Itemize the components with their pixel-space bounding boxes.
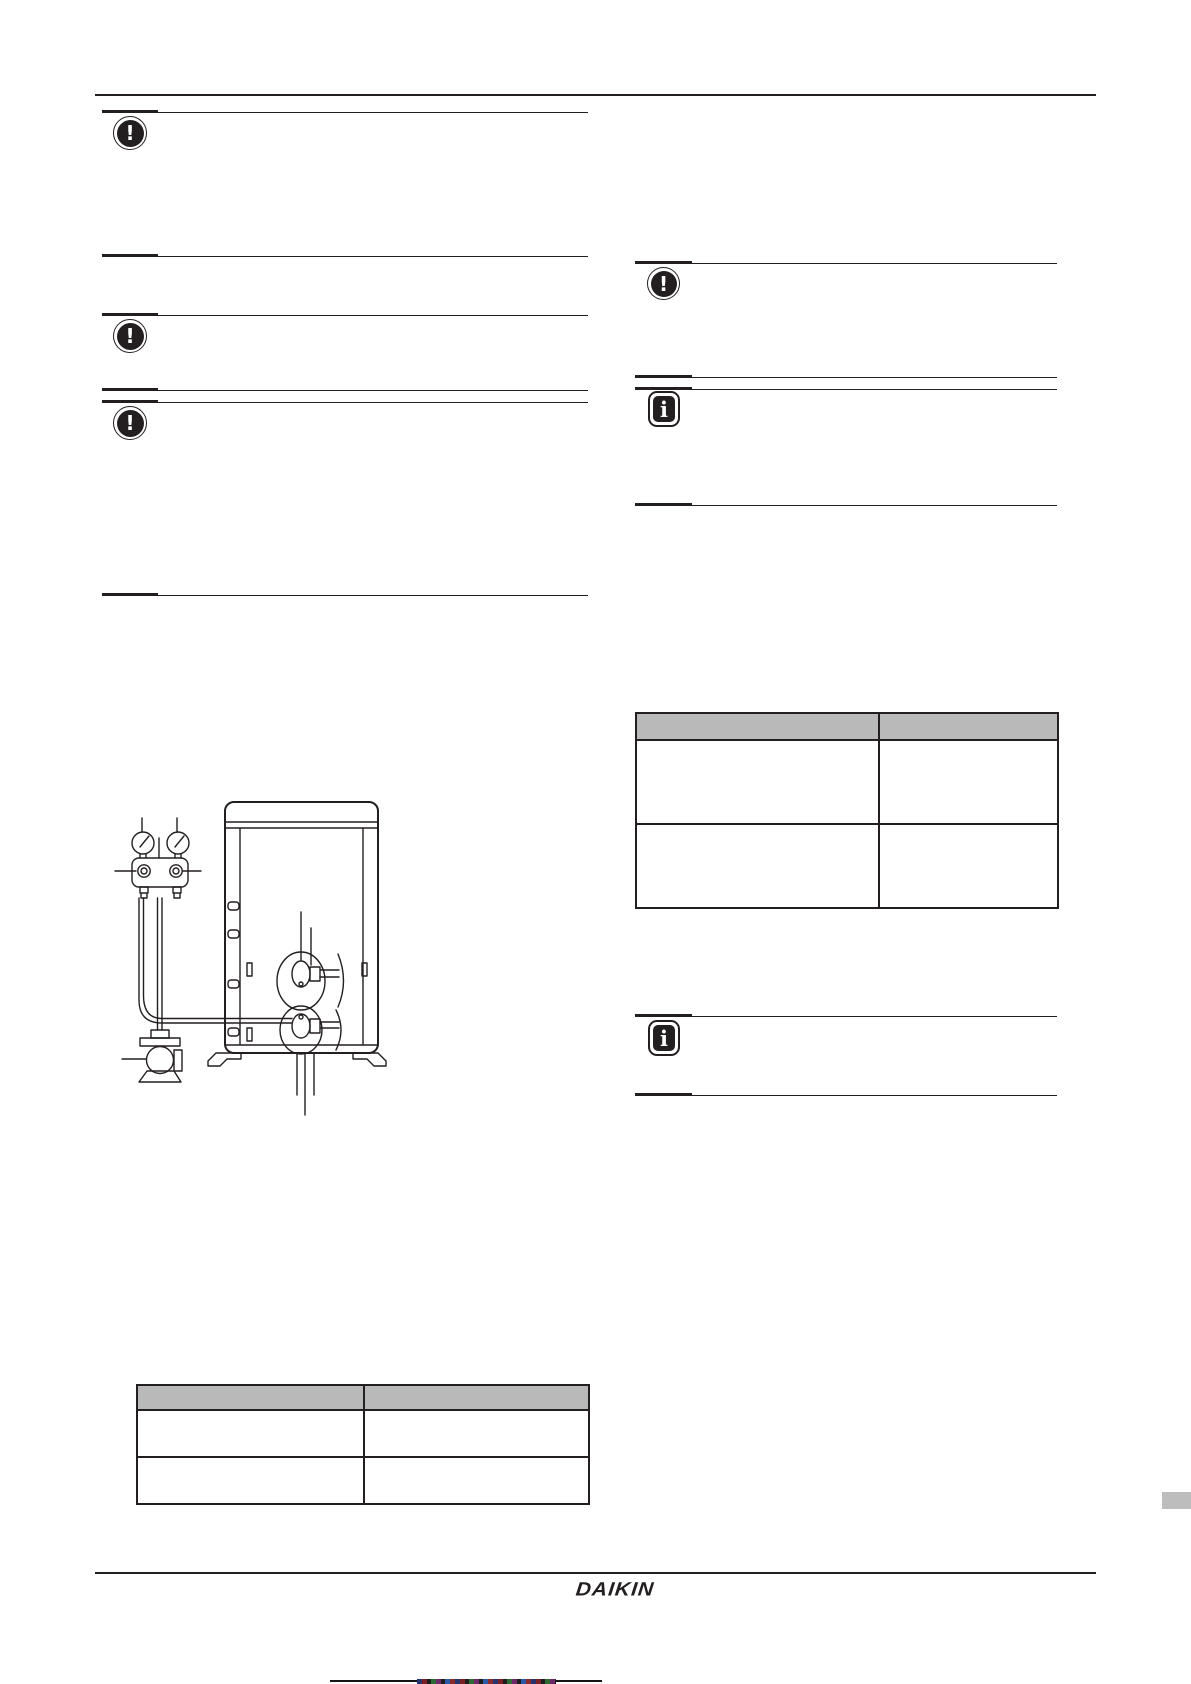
notice-exclamation-icon: !	[113, 319, 147, 353]
callout-rule	[102, 110, 158, 113]
unit-cabinet	[208, 802, 386, 1066]
pressure-gauge	[167, 832, 189, 858]
info-icon: i	[648, 1020, 680, 1056]
callout-rule	[635, 387, 692, 390]
callout-rule	[102, 388, 158, 391]
footer-rule	[95, 1572, 1096, 1574]
notice-glyph: !	[117, 410, 144, 437]
callout-rule	[692, 389, 1057, 390]
callout-rule	[158, 315, 588, 316]
notice-exclamation-icon: !	[647, 267, 680, 300]
table-cell	[137, 1457, 364, 1504]
callout-rule	[102, 593, 158, 596]
leader-lines	[297, 1054, 314, 1115]
table-cell	[636, 740, 879, 824]
table-cell	[364, 1457, 589, 1504]
callout-rule	[692, 1016, 1057, 1017]
notice-glyph: !	[117, 323, 144, 350]
table-header-row	[636, 713, 1058, 740]
table-header-cell	[364, 1385, 589, 1410]
table-row	[636, 740, 1058, 824]
table-cell	[636, 824, 879, 908]
service-valves	[277, 952, 344, 1054]
table-header-cell	[636, 713, 879, 740]
gauge-manifold	[132, 858, 188, 898]
vacuum-pump	[122, 1030, 182, 1082]
notice-exclamation-icon: !	[113, 116, 147, 150]
callout-rule	[158, 390, 588, 391]
callout-rule	[158, 595, 588, 596]
table-cell	[137, 1410, 364, 1457]
notice-glyph: !	[117, 120, 144, 147]
table-cell	[879, 740, 1058, 824]
callout-rule	[635, 261, 692, 264]
callout-rule	[102, 254, 158, 257]
section-thumb-tab	[1162, 1492, 1191, 1509]
callout-rule	[635, 1014, 692, 1017]
callout-rule	[158, 402, 588, 403]
notice-exclamation-icon: !	[113, 406, 147, 440]
table-header-row	[137, 1385, 589, 1410]
callout-rule	[158, 112, 588, 113]
table-row	[137, 1457, 589, 1504]
daikin-logo: DAIKIN	[539, 1579, 691, 1601]
callout-rule	[692, 1095, 1057, 1096]
table-row	[636, 824, 1058, 908]
callout-rule	[635, 375, 692, 378]
table-cell	[879, 824, 1058, 908]
table-row	[137, 1410, 589, 1457]
callout-rule	[635, 1093, 692, 1096]
print-color-bar	[417, 1679, 556, 1684]
info-glyph: i	[653, 396, 675, 422]
left-column-table	[136, 1384, 590, 1505]
vacuum-setup-diagram	[95, 738, 395, 1118]
callout-rule	[102, 313, 158, 316]
table-header-cell	[137, 1385, 364, 1410]
info-icon: i	[648, 391, 680, 427]
callout-rule	[158, 256, 588, 257]
document-page: ! ! ! ! i i	[0, 0, 1191, 1684]
leader-lines	[301, 912, 311, 965]
info-glyph: i	[653, 1025, 675, 1051]
table-cell	[364, 1410, 589, 1457]
right-column-table	[635, 712, 1059, 909]
callout-rule	[692, 377, 1057, 378]
table-header-cell	[879, 713, 1058, 740]
page-top-rule	[95, 94, 1096, 96]
callout-rule	[102, 400, 158, 403]
notice-glyph: !	[651, 271, 677, 297]
callout-rule	[692, 263, 1057, 264]
callout-rule	[692, 505, 1057, 506]
pressure-gauge	[132, 832, 154, 858]
charging-hoses	[139, 898, 292, 1030]
callout-rule	[635, 503, 692, 506]
